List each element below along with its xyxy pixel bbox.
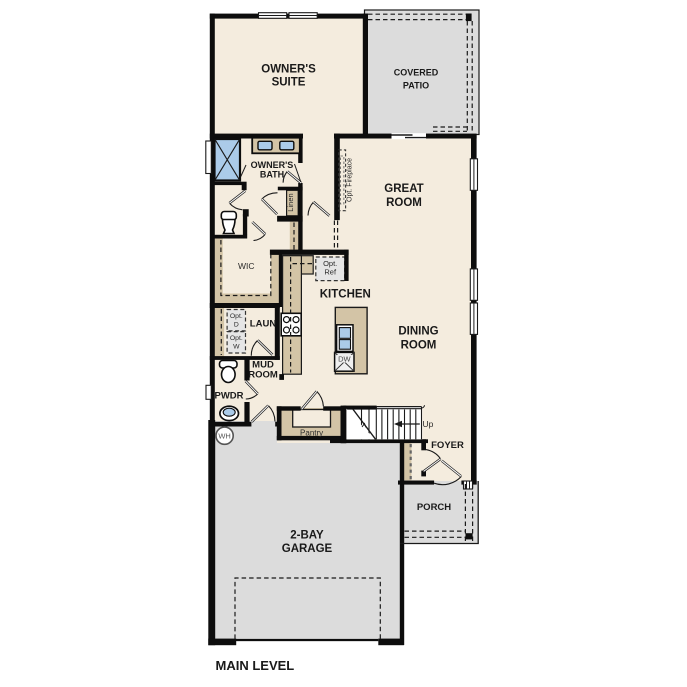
svg-text:SUITE: SUITE [272, 77, 306, 89]
svg-text:Opt.: Opt. [230, 313, 243, 320]
svg-text:Up: Up [423, 419, 434, 429]
svg-text:Pantry: Pantry [300, 429, 323, 438]
svg-text:2-BAY: 2-BAY [290, 530, 324, 542]
svg-text:WIC: WIC [238, 261, 255, 271]
svg-text:GREAT: GREAT [384, 183, 423, 195]
svg-text:D: D [234, 322, 239, 329]
svg-text:Linen: Linen [286, 193, 295, 211]
svg-text:WH: WH [218, 432, 231, 441]
svg-text:DINING: DINING [398, 326, 438, 338]
svg-text:Ref: Ref [324, 268, 337, 277]
svg-text:Opt.: Opt. [230, 335, 243, 342]
svg-text:BATH: BATH [260, 170, 284, 180]
svg-text:ROOM: ROOM [401, 340, 437, 352]
svg-text:ROOM: ROOM [386, 197, 422, 209]
svg-text:Opt. Fireplace: Opt. Fireplace [347, 158, 354, 202]
svg-text:OWNER'S: OWNER'S [261, 64, 316, 76]
svg-text:DW: DW [338, 355, 351, 364]
svg-text:OWNER'S: OWNER'S [251, 160, 294, 170]
svg-text:MAIN LEVEL: MAIN LEVEL [216, 658, 295, 673]
svg-text:LAUN: LAUN [250, 319, 277, 330]
svg-text:COVERED: COVERED [394, 68, 439, 78]
svg-text:KITCHEN: KITCHEN [320, 289, 371, 301]
svg-text:PORCH: PORCH [417, 502, 451, 513]
svg-text:PWDR: PWDR [214, 391, 243, 402]
svg-text:PATIO: PATIO [403, 81, 429, 91]
svg-text:GARAGE: GARAGE [282, 543, 333, 555]
svg-text:ROOM: ROOM [248, 369, 278, 380]
svg-text:FOYER: FOYER [431, 440, 464, 451]
svg-text:W: W [233, 344, 240, 351]
